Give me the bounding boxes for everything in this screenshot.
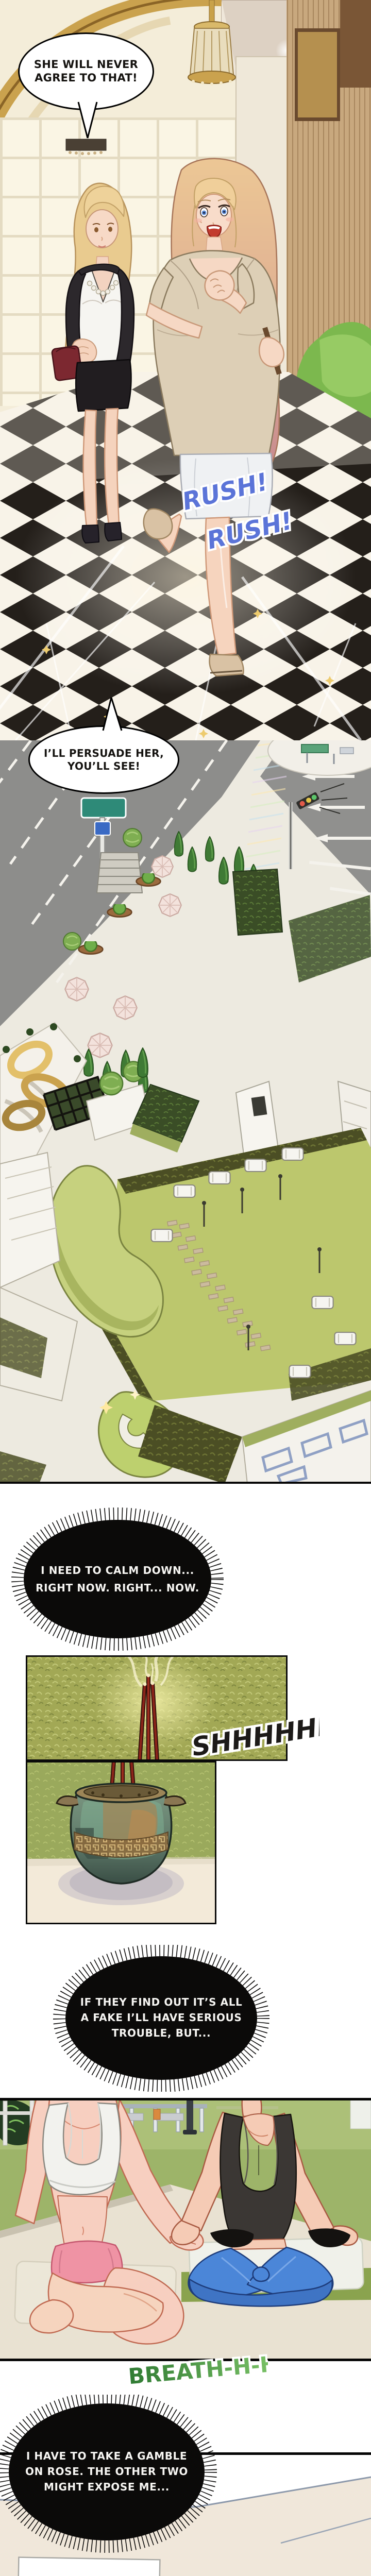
- subway-stairs: [97, 853, 142, 893]
- speech-line: YOU’LL SEE!: [68, 760, 140, 772]
- hedge-strip: [233, 869, 282, 935]
- panel-yoga: [0, 2098, 371, 2361]
- panel-mall-walk: [0, 0, 371, 740]
- fist: [205, 271, 234, 300]
- speech-line: I’LL PERSUADE HER,: [44, 747, 164, 759]
- panel-incense-pot: [26, 1761, 216, 1924]
- sfx-shh-text: SHHHHHH!: [190, 1708, 319, 1762]
- thought-line: ON ROSE. THE OTHER TWO: [25, 2465, 188, 2478]
- speech-bubble-tail: [76, 101, 101, 140]
- speech-bubble-persuade: I’LL PERSUADE HER, YOU’LL SEE!: [28, 725, 179, 794]
- speech-bubble-agree: SHE WILL NEVER AGREE TO THAT!: [18, 32, 154, 110]
- thought-line: I NEED TO CALM DOWN...: [41, 1564, 194, 1577]
- panel-aerial-plaza: [0, 740, 371, 1484]
- sfx-breath-text: BREATH-H-H: [127, 2351, 268, 2389]
- sfx-rush-line1: RUSH!: [180, 468, 271, 516]
- sfx-rush-line2: RUSH!: [204, 506, 295, 555]
- sfx-breath: BREATH-H-H: [124, 2334, 268, 2401]
- thought-line: TROUBLE, BUT...: [112, 2027, 211, 2039]
- thought-line: IF THEY FIND OUT IT’S ALL: [80, 1996, 243, 2008]
- paper-sheet: [18, 2557, 160, 2576]
- sfx-rush: RUSH! RUSH!: [180, 459, 299, 577]
- thought-bubble-gamble: I HAVE TO TAKE A GAMBLE ON ROSE. THE OTH…: [0, 2395, 222, 2554]
- speech-line: AGREE TO THAT!: [35, 72, 138, 85]
- webtoon-page: SHE WILL NEVER AGREE TO THAT! RUSH! RUSH…: [0, 0, 371, 2576]
- speech-line: SHE WILL NEVER: [34, 58, 138, 72]
- sfx-shh: SHHHHHH!: [185, 1695, 319, 1772]
- thought-line: RIGHT NOW. RIGHT... NOW.: [36, 1582, 199, 1594]
- thought-line: I HAVE TO TAKE A GAMBLE: [26, 2450, 187, 2462]
- thought-bubble-fake: IF THEY FIND OUT IT’S ALL A FAKE I’LL HA…: [52, 1945, 278, 2092]
- thought-bubble-calm: I NEED TO CALM DOWN... RIGHT NOW. RIGHT.…: [0, 1502, 242, 1656]
- thought-line: MIGHT EXPOSE ME...: [44, 2481, 170, 2493]
- cafe-umbrella: [151, 856, 173, 877]
- speech-bubble-tail-up: [101, 696, 124, 732]
- thought-line: A FAKE I’LL HAVE SERIOUS: [81, 2011, 242, 2024]
